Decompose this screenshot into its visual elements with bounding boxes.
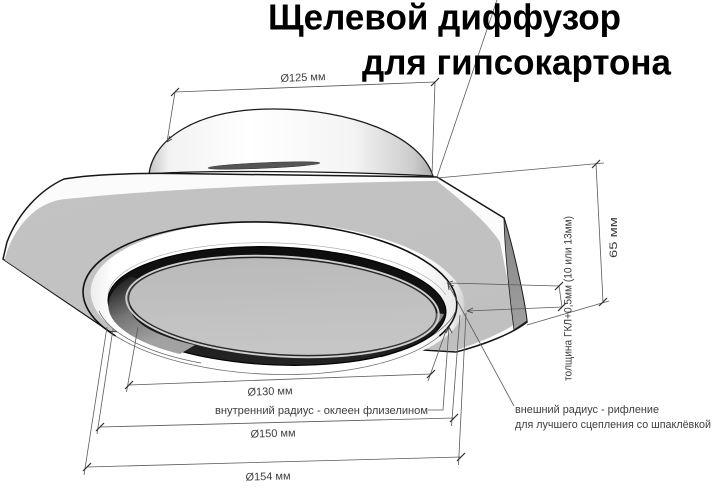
svg-text:внешний радиус - рифление: внешний радиус - рифление: [515, 404, 659, 416]
svg-text:толщина ГКЛ+0,5мм (10 или 13мм: толщина ГКЛ+0,5мм (10 или 13мм): [563, 216, 575, 381]
svg-text:Ø125 мм: Ø125 мм: [280, 71, 326, 85]
svg-text:Ø154 мм: Ø154 мм: [245, 470, 290, 483]
svg-text:для гипсокартона: для гипсокартона: [362, 42, 672, 83]
svg-text:Ø130 мм: Ø130 мм: [247, 385, 292, 399]
svg-text:для лучшего сцепления со шпакл: для лучшего сцепления со шпаклёвкой: [515, 419, 711, 431]
svg-text:внутренний радиус - оклеен фли: внутренний радиус - оклеен флизелином: [215, 405, 428, 417]
svg-text:65 мм: 65 мм: [608, 217, 620, 258]
svg-text:Ø150 мм: Ø150 мм: [250, 427, 295, 440]
svg-text:Щелевой диффузор: Щелевой диффузор: [268, 0, 621, 38]
